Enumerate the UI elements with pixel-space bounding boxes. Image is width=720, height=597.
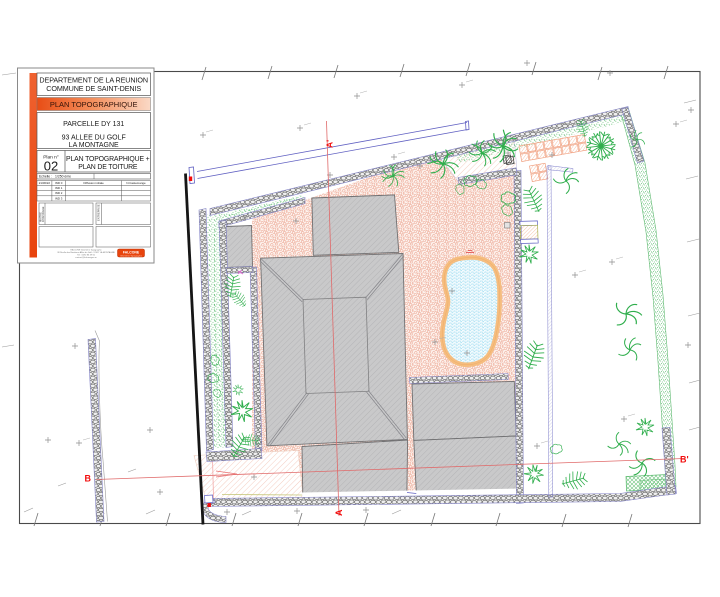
svg-text:IND 3: IND 3 (55, 196, 63, 200)
svg-text:21/06/22: 21/06/22 (39, 181, 51, 185)
svg-text:FALCONE: FALCONE (123, 251, 140, 255)
svg-text:PLAN TOPOGRAPHIQUE: PLAN TOPOGRAPHIQUE (50, 100, 138, 109)
svg-text:PARCELLE DY 131: PARCELLE DY 131 (63, 121, 124, 128)
svg-text:PLAN TOPOGRAPHIQUE +: PLAN TOPOGRAPHIQUE + (66, 156, 150, 163)
svg-text:A': A' (325, 140, 335, 148)
svg-text:COMMUNE DE SAINT-DENIS: COMMUNE DE SAINT-DENIS (46, 84, 141, 93)
svg-text:A: A (334, 509, 344, 516)
svg-text:N.Castemange: N.Castemange (126, 181, 146, 185)
svg-text:93 ALLEE DU GOLF: 93 ALLEE DU GOLF (62, 135, 126, 142)
svg-text:IND 1: IND 1 (55, 186, 63, 190)
svg-text:PLAN DE TOITURE: PLAN DE TOITURE (78, 164, 138, 171)
svg-text:contact@falconegeo.re: contact@falconegeo.re (75, 256, 97, 259)
svg-text:IND 0: IND 0 (55, 181, 63, 185)
svg-text:B: B (85, 474, 92, 484)
svg-text:Diffusion initiale: Diffusion initiale (83, 181, 104, 185)
svg-text:1/250 ème: 1/250 ème (55, 175, 71, 179)
svg-text:ENTREPRISE: ENTREPRISE (97, 204, 101, 221)
svg-text:Géomètre Topographe: Géomètre Topographe (120, 255, 143, 258)
svg-text:IND 2: IND 2 (55, 191, 63, 195)
svg-text:LA MONTAGNE: LA MONTAGNE (69, 142, 119, 149)
svg-text:B': B' (680, 455, 689, 465)
svg-text:02: 02 (44, 159, 58, 174)
svg-text:Echelle :: Echelle : (39, 175, 52, 179)
svg-text:D'OUVRAGE: D'OUVRAGE (41, 206, 45, 222)
